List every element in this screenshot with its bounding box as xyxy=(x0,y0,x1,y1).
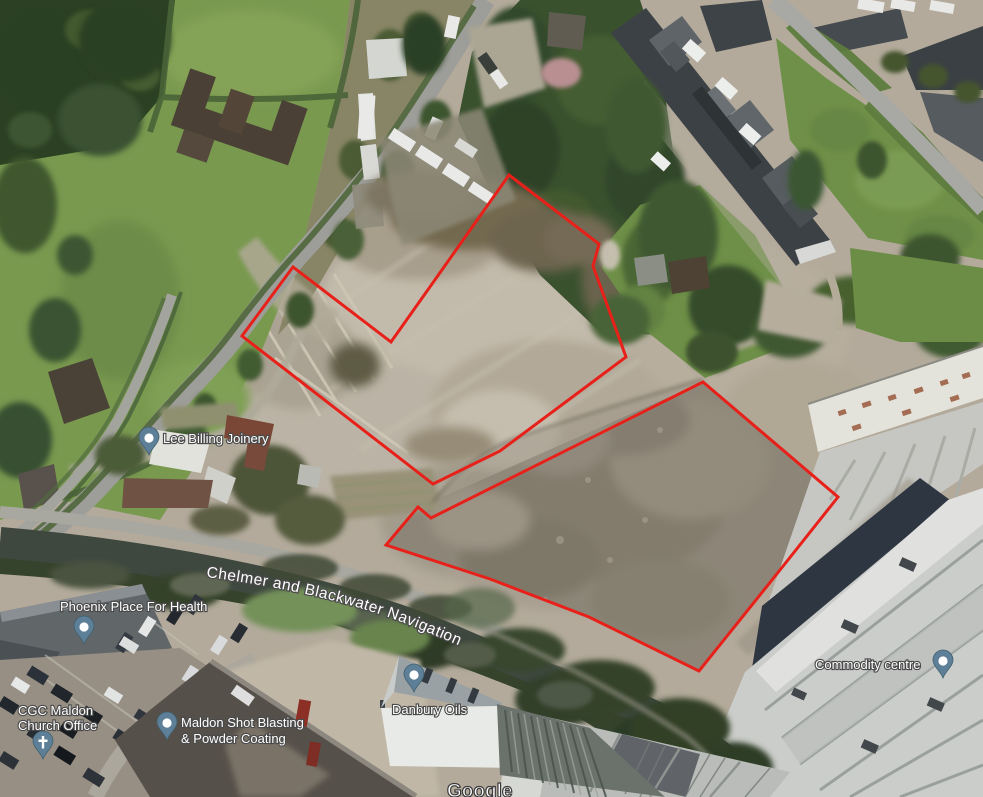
svg-text:CGC Maldon: CGC Maldon xyxy=(18,703,93,718)
svg-text:Google: Google xyxy=(447,781,512,797)
svg-text:Phoenix Place For Health: Phoenix Place For Health xyxy=(60,599,207,614)
svg-text:Danbury Oils: Danbury Oils xyxy=(392,702,468,717)
svg-text:Maldon Shot Blasting: Maldon Shot Blasting xyxy=(181,715,304,730)
svg-text:Lee Billing Joinery: Lee Billing Joinery xyxy=(163,431,269,446)
svg-text:Church Office: Church Office xyxy=(18,718,97,733)
svg-text:Commodity centre: Commodity centre xyxy=(815,657,920,672)
svg-text:& Powder Coating: & Powder Coating xyxy=(181,731,286,746)
